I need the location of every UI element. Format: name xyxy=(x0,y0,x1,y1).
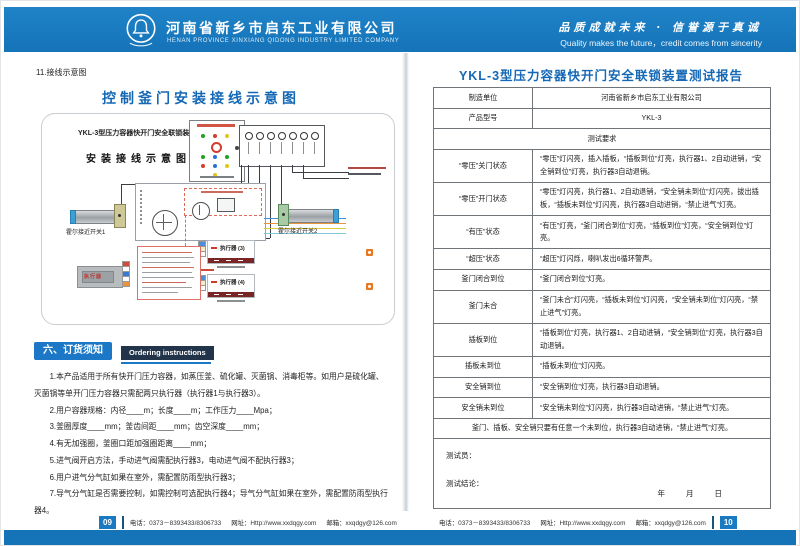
phone-value: 0373－8393433/8306733 xyxy=(149,520,221,527)
hall-switch-1-label: 霍尔接近开关1 xyxy=(66,227,105,236)
executor-unit-label: 执行器 xyxy=(84,273,102,280)
control-panel xyxy=(189,120,245,182)
table-content-cell: YKL-3 xyxy=(533,108,771,129)
ordering-item: 4.有无加强圈，釜圈口距加强圈距离____mm； xyxy=(34,436,390,453)
table-span-cell: 釜门、插板、安全销只要有任意一个未到位，执行器3自动进销，“禁止进气”灯亮。 xyxy=(434,418,771,439)
table-row: “零压”开门状态“零压”灯闪亮，执行器1、2自动退销，“安全销未到位”灯闪亮，拔… xyxy=(434,182,771,215)
table-label-cell: “有压”状态 xyxy=(434,216,533,249)
left-page-title: 控制釜门安装接线示意图 xyxy=(1,88,401,108)
table-content-cell: 河南省新乡市启东工业有限公司 xyxy=(533,88,771,109)
table-row: 制造单位河南省新乡市启东工业有限公司 xyxy=(434,88,771,109)
header-banner: 河南省新乡市启东工业有限公司 HENAN PROVINCE XINXIANG Q… xyxy=(4,7,796,52)
small-wheel xyxy=(192,202,210,220)
hall-switch-1-bracket xyxy=(114,204,126,228)
website-value: Http://www.xxdqgy.com xyxy=(250,520,316,527)
executor-3-label: 执行器 (3) xyxy=(220,244,245,252)
phone-value: 0373－8393433/8306733 xyxy=(458,520,530,527)
test-report-table: 制造单位河南省新乡市启东工业有限公司产品型号YKL-3测试要求“零压”关门状态“… xyxy=(433,87,771,509)
mechanism-box xyxy=(135,183,266,241)
panel-title-line xyxy=(197,124,235,127)
table-content-cell: “零压”灯闪亮，执行器1、2自动退销，“安全销未到位”灯闪亮，拔出插板，“插板未… xyxy=(533,182,771,215)
wiring-diagram: YKL-3型压力容器快开门安全联锁装置 安装接线示意图 xyxy=(41,113,395,325)
ordering-item: 5.进气阀开启方法，手动进气阀需配执行器3，电动进气阀不配执行器3； xyxy=(34,453,390,470)
hall-switch-2-body xyxy=(285,209,335,223)
ordering-heading-en: Ordering instructions xyxy=(121,346,214,360)
wire-tag-line xyxy=(348,167,386,169)
tester-label: 测试员： xyxy=(446,449,476,462)
dashed-box-caption-line xyxy=(201,191,243,193)
table-row: 安全销未到位“安全销未到位”灯闪亮，执行器3自动进销，“禁止进气”灯亮。 xyxy=(434,398,771,419)
table-label-cell: 釜门闭合到位 xyxy=(434,269,533,290)
company-name-cn: 河南省新乡市启东工业有限公司 xyxy=(166,18,397,38)
diagram-notes-box xyxy=(137,246,201,300)
brand-logo-icon xyxy=(366,283,373,290)
hall-switch-2-tip xyxy=(333,209,339,223)
connector-stack xyxy=(122,262,129,287)
hall-switch-2-label: 霍尔接近开关2 xyxy=(278,226,317,235)
slogan-cn: 品质成就未来 · 信誉源于真诚 xyxy=(559,19,763,35)
website-value: Http://www.xxdqgy.com xyxy=(560,520,626,527)
footer-right: 电话：0373－8393433/8306733 网址：Http://www.xx… xyxy=(439,516,737,529)
page-gutter xyxy=(402,53,409,511)
footer-divider xyxy=(122,516,124,529)
ordering-list: 1.本产品适用于所有快开门压力容器，如蒸压釜、硫化罐、灭菌锅、消毒柜等。如用户是… xyxy=(34,369,390,520)
panel-caption-line xyxy=(200,176,234,178)
document-spread: 河南省新乡市启东工业有限公司 HENAN PROVINCE XINXIANG Q… xyxy=(0,0,800,546)
footer-left: 09 电话：0373－8393433/8306733 网址：Http://www… xyxy=(99,516,397,529)
table-row: “超压”状态“超压”灯闪烁，喇叭发出6循环警声。 xyxy=(434,249,771,270)
footer-divider xyxy=(712,516,714,529)
ordering-heading-cn: 六、订货须知 xyxy=(34,342,112,360)
executor-4: 执行器 (4) xyxy=(207,274,255,298)
dashed-link xyxy=(185,215,186,246)
page-number-left: 09 xyxy=(99,516,116,529)
executor-3: 执行器 (3) xyxy=(207,240,255,264)
ordering-item: 6.用户进气分气缸如果在室外，需配置防雨型执行器3； xyxy=(34,470,390,487)
table-label-cell: 插板到位 xyxy=(434,323,533,356)
rainproof-tag-line xyxy=(200,269,214,271)
table-label-cell: 安全销到位 xyxy=(434,377,533,398)
table-label-cell: 产品型号 xyxy=(434,108,533,129)
table-content-cell: “安全销到位”灯亮，执行器3自动退销。 xyxy=(533,377,771,398)
test-report-table-wrap: 制造单位河南省新乡市启东工业有限公司产品型号YKL-3测试要求“零压”关门状态“… xyxy=(433,87,773,509)
ordering-item: 7.导气分气缸是否需要控制，如需控制可选配执行器4；导气分气缸如果在室外，需配置… xyxy=(34,486,390,520)
table-label-cell: “零压”开门状态 xyxy=(434,182,533,215)
executor-4-caption-line xyxy=(217,300,245,302)
table-row: 釜门未合“釜门未合”灯闪亮，“插板未到位”灯闪亮，“安全销未到位”灯闪亮，“禁止… xyxy=(434,290,771,323)
contact-left: 电话：0373－8393433/8306733 网址：Http://www.xx… xyxy=(130,516,397,529)
wire-tag-line xyxy=(348,173,381,175)
table-content-cell: “釜门未合”灯闪亮，“插板未到位”灯闪亮，“安全销未到位”灯闪亮，“禁止进气”灯… xyxy=(533,290,771,323)
signoff-cell: 测试员：测试结论：年 月 日 xyxy=(434,439,771,509)
table-content-cell: “安全销未到位”灯闪亮，执行器3自动进销，“禁止进气”灯亮。 xyxy=(533,398,771,419)
executor-unit: 执行器 xyxy=(77,266,123,288)
table-content-cell: “插板到位”灯亮，执行器1、2自动进销，“安全销到位”灯亮，执行器3自动退销。 xyxy=(533,323,771,356)
table-row: “有压”状态“有压”灯亮，“釜门闭合到位”灯亮，“插板到位”灯亮，“安全销到位”… xyxy=(434,216,771,249)
email-value: xxqdgy@126.com xyxy=(655,520,706,527)
door-lock-wheel xyxy=(152,210,178,236)
table-content-cell: “釜门闭合到位”灯亮。 xyxy=(533,269,771,290)
conclusion-label: 测试结论： xyxy=(446,477,484,490)
table-row-signoff: 测试员：测试结论：年 月 日 xyxy=(434,439,771,509)
table-row: 插板未到位“插板未到位”灯闪亮。 xyxy=(434,356,771,377)
section-label: 11.接线示意图 xyxy=(36,67,87,78)
hall-switch-2-bracket xyxy=(278,204,289,226)
diagram-subtitle2: 安装接线示意图 xyxy=(86,150,191,165)
date-label: 年 月 日 xyxy=(658,487,725,500)
table-label-cell: 插板未到位 xyxy=(434,356,533,377)
diagram-subtitle: YKL-3型压力容器快开门安全联锁装置 xyxy=(78,128,196,138)
table-content-cell: “插板未到位”灯闪亮。 xyxy=(533,356,771,377)
test-table-body: 制造单位河南省新乡市启东工业有限公司产品型号YKL-3测试要求“零压”关门状态“… xyxy=(434,88,771,509)
ordering-heading-underline xyxy=(121,362,211,364)
page-number-right: 10 xyxy=(720,516,737,529)
company-name-en: HENAN PROVINCE XINXIANG QIDONG INDUSTRY … xyxy=(167,38,399,44)
table-row: 测试要求 xyxy=(434,129,771,150)
hall-switch-1-tip xyxy=(70,210,76,224)
table-label-cell: 制造单位 xyxy=(434,88,533,109)
table-row: “零压”关门状态“零压”灯闪亮，插入插板，“插板到位”灯亮，执行器1、2自动进销… xyxy=(434,149,771,182)
table-content-cell: “有压”灯亮，“釜门闭合到位”灯亮，“插板到位”灯亮，“安全销到位”灯亮。 xyxy=(533,216,771,249)
executor-4-label: 执行器 (4) xyxy=(220,278,245,286)
table-row: 釜门、插板、安全销只要有任意一个未到位，执行器3自动进销，“禁止进气”灯亮。 xyxy=(434,418,771,439)
table-row: 釜门闭合到位“釜门闭合到位”灯亮。 xyxy=(434,269,771,290)
table-label-cell: “超压”状态 xyxy=(434,249,533,270)
email-value: xxqdgy@126.com xyxy=(346,520,397,527)
table-label-cell: 釜门未合 xyxy=(434,290,533,323)
table-label-cell: 安全销未到位 xyxy=(434,398,533,419)
table-row: 插板到位“插板到位”灯亮，执行器1、2自动进销，“安全销到位”灯亮，执行器3自动… xyxy=(434,323,771,356)
executor-3-caption-line xyxy=(217,266,245,268)
footer-banner xyxy=(4,530,796,545)
side-text-line xyxy=(140,190,142,226)
company-logo-bell-icon xyxy=(122,11,160,49)
slogan-en: Quality makes the future，credit comes fr… xyxy=(560,37,762,49)
brand-logo-icon xyxy=(366,249,373,256)
contact-right: 电话：0373－8393433/8306733 网址：Http://www.xx… xyxy=(439,516,706,529)
table-content-cell: “超压”灯闪烁，喇叭发出6循环警声。 xyxy=(533,249,771,270)
table-content-cell: “零压”灯闪亮，插入插板，“插板到位”灯亮，执行器1、2自动进销，“安全销到位”… xyxy=(533,149,771,182)
ordering-item: 1.本产品适用于所有快开门压力容器，如蒸压釜、硫化罐、灭菌锅、消毒柜等。如用户是… xyxy=(34,369,390,403)
ordering-item: 3.釜圈厚度____mm；釜齿间距____mm；齿空深度____mm； xyxy=(34,419,390,436)
table-row: 安全销到位“安全销到位”灯亮，执行器3自动退销。 xyxy=(434,377,771,398)
panel-main-indicator xyxy=(211,142,222,153)
table-row: 产品型号YKL-3 xyxy=(434,108,771,129)
ordering-item: 2.用户容器规格：内径____m；长度____m；工作压力____Mpa； xyxy=(34,403,390,420)
table-span-cell: 测试要求 xyxy=(434,129,771,150)
terminal-box xyxy=(239,125,325,167)
table-label-cell: “零压”关门状态 xyxy=(434,149,533,182)
right-page-title: YKL-3型压力容器快开门安全联锁装置测试报告 xyxy=(413,65,789,84)
lock-component xyxy=(217,198,235,212)
